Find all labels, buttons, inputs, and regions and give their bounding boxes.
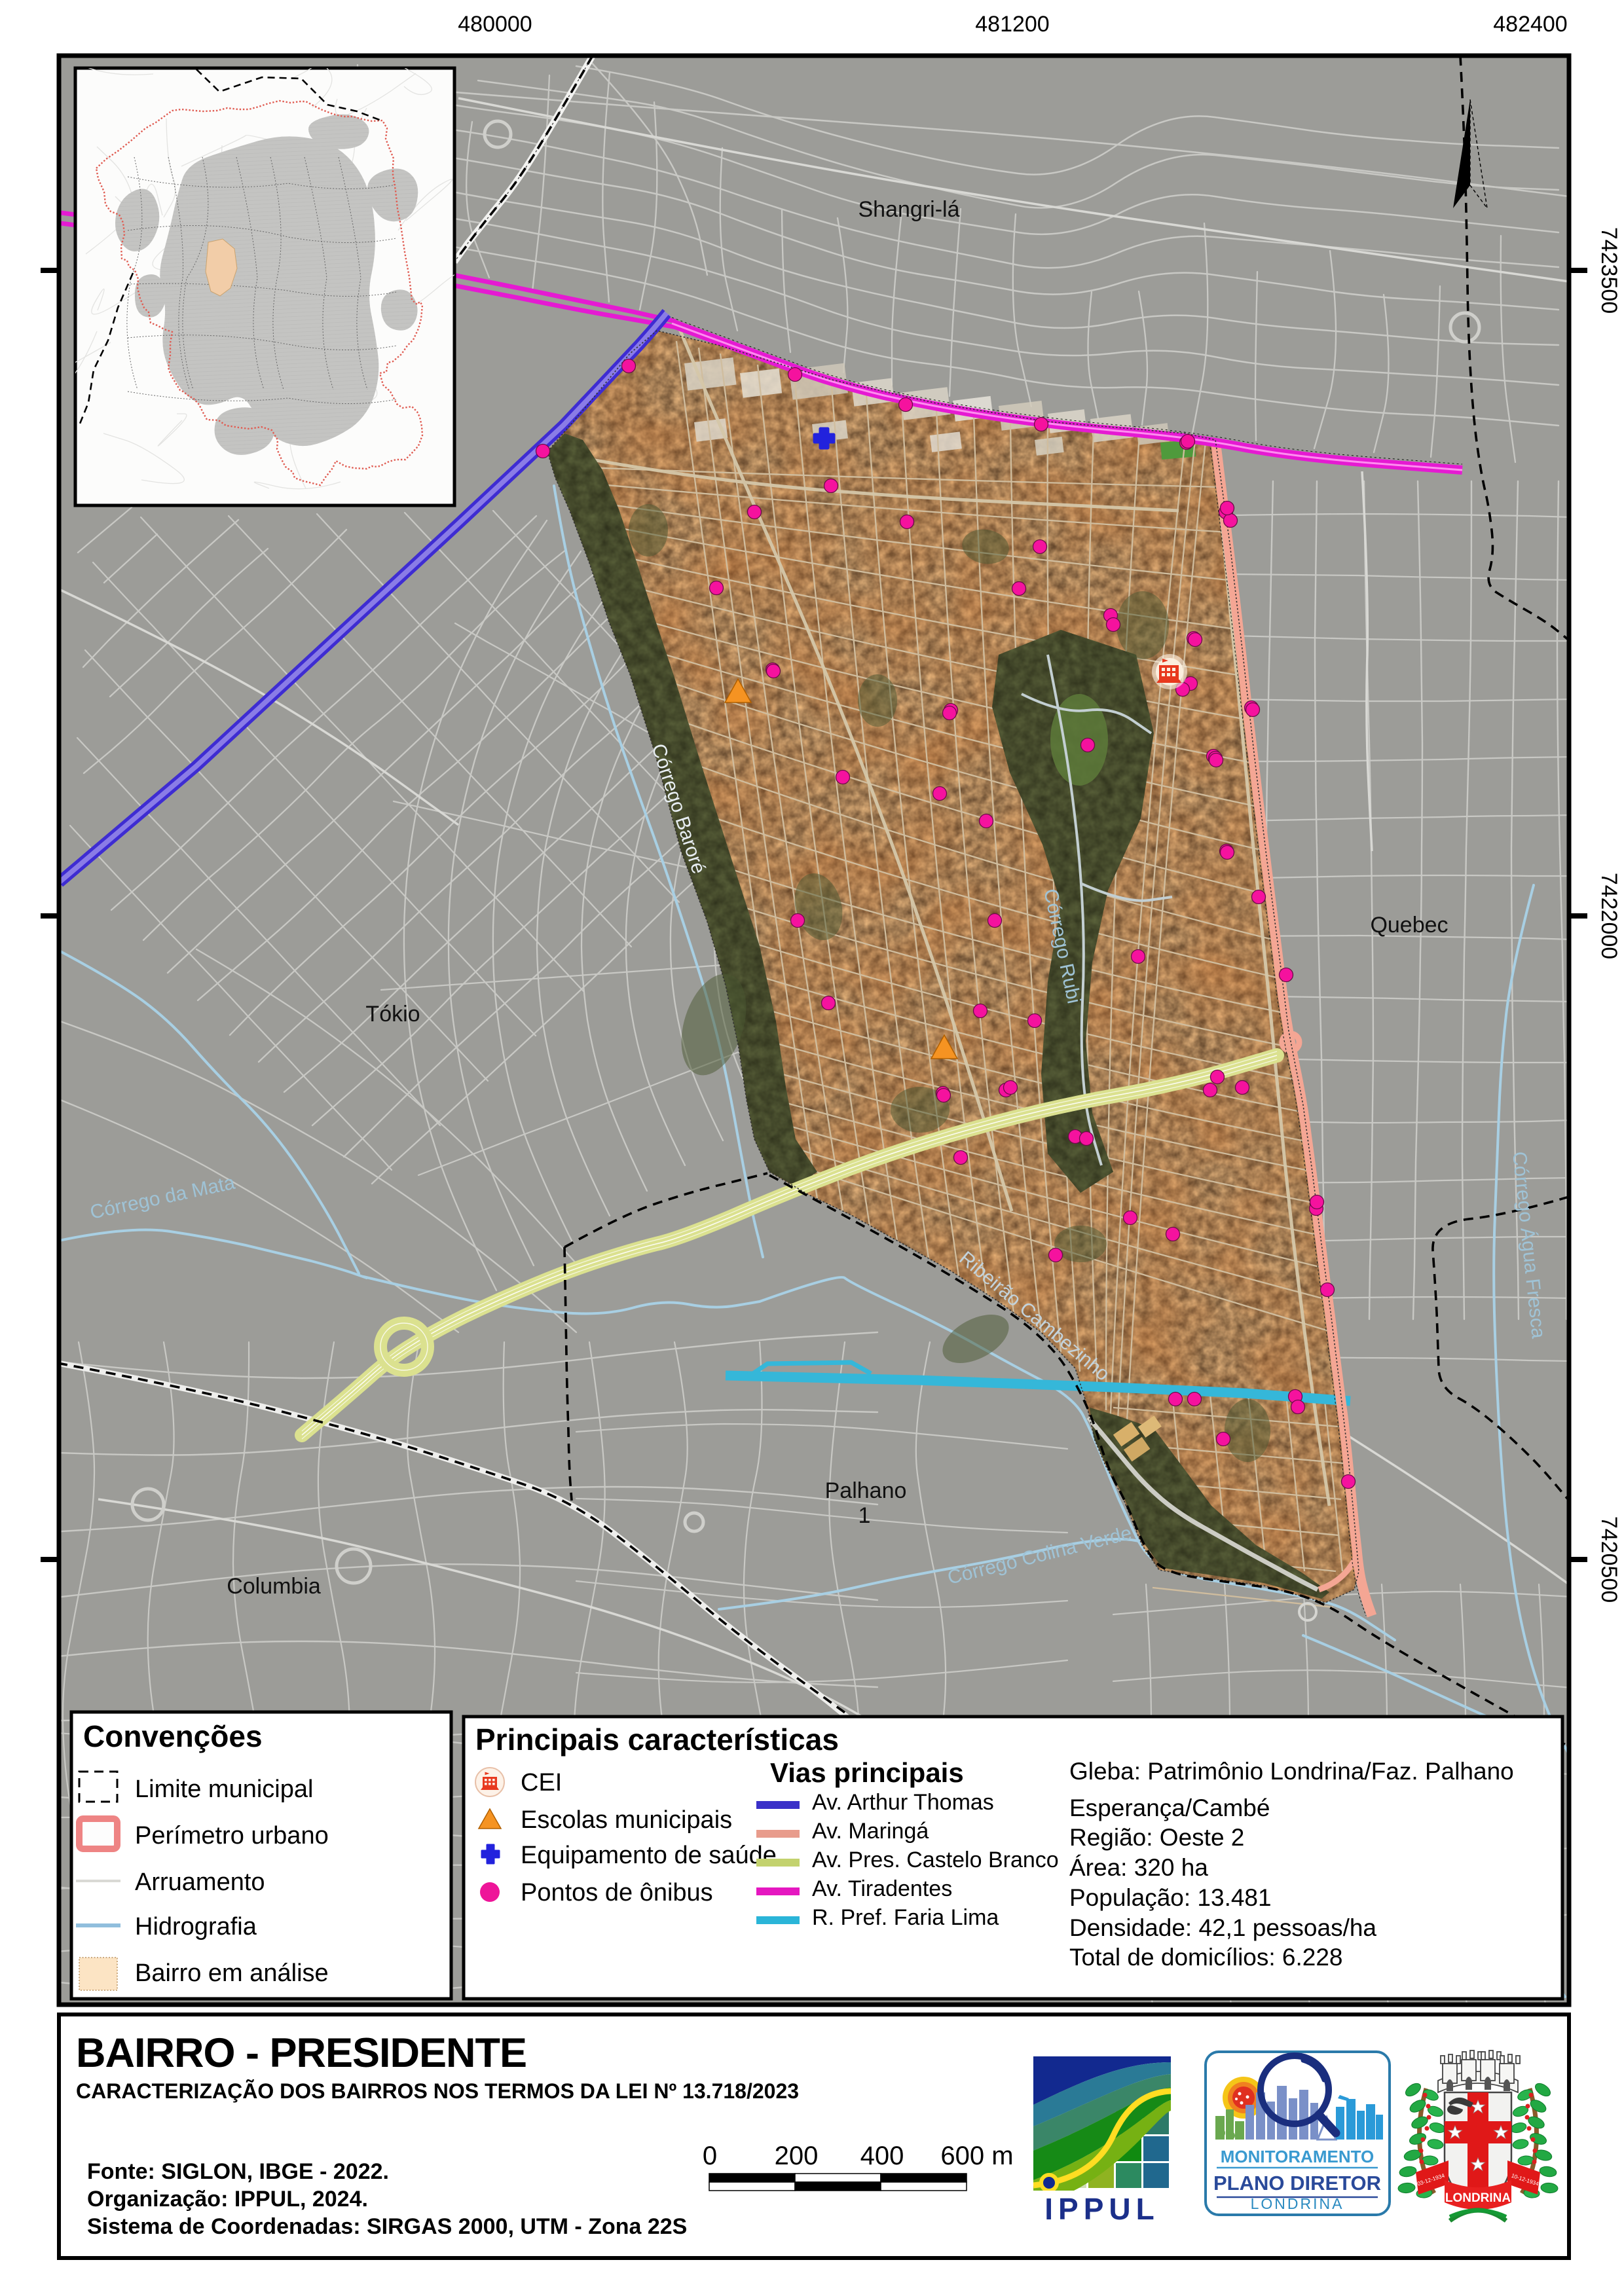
- svg-text:Pontos de ônibus: Pontos de ônibus: [521, 1879, 713, 1906]
- svg-text:Organização: IPPUL, 2024.: Organização: IPPUL, 2024.: [87, 2187, 368, 2212]
- svg-text:Esperança/Cambé: Esperança/Cambé: [1069, 1795, 1270, 1821]
- svg-text:480000: 480000: [458, 12, 532, 37]
- svg-text:600 m: 600 m: [940, 2141, 1013, 2170]
- svg-text:Escolas municipais: Escolas municipais: [521, 1806, 732, 1834]
- svg-text:LONDRINA: LONDRINA: [1445, 2191, 1511, 2205]
- svg-text:Hidrografia: Hidrografia: [135, 1913, 257, 1941]
- svg-text:População: 13.481: População: 13.481: [1069, 1884, 1272, 1911]
- svg-text:Columbia: Columbia: [227, 1574, 321, 1599]
- svg-text:Vias principais: Vias principais: [770, 1757, 964, 1788]
- svg-text:Tókio: Tókio: [365, 1002, 420, 1027]
- svg-text:Sistema de Coordenadas: SIRGAS: Sistema de Coordenadas: SIRGAS 2000, UTM…: [87, 2214, 687, 2239]
- svg-text:IPPUL: IPPUL: [1044, 2192, 1159, 2226]
- svg-text:0: 0: [703, 2141, 717, 2170]
- svg-text:Av. Tiradentes: Av. Tiradentes: [812, 1876, 952, 1901]
- svg-text:Palhano: Palhano: [825, 1478, 907, 1503]
- svg-text:1: 1: [858, 1503, 871, 1528]
- svg-text:Perímetro urbano: Perímetro urbano: [135, 1822, 329, 1850]
- svg-text:482400: 482400: [1493, 12, 1567, 37]
- svg-text:7423500: 7423500: [1596, 227, 1621, 314]
- svg-text:400: 400: [860, 2141, 904, 2170]
- svg-text:BAIRRO - PRESIDENTE: BAIRRO - PRESIDENTE: [76, 2030, 526, 2076]
- svg-text:MONITORAMENTO: MONITORAMENTO: [1221, 2147, 1374, 2166]
- svg-text:Área: 320 ha: Área: 320 ha: [1069, 1854, 1208, 1881]
- svg-text:Total de domicílios: 6.228: Total de domicílios: 6.228: [1069, 1944, 1343, 1971]
- svg-text:Equipamento de saúde: Equipamento de saúde: [521, 1842, 777, 1869]
- svg-text:7422000: 7422000: [1596, 873, 1621, 959]
- svg-text:Quebec: Quebec: [1370, 913, 1448, 938]
- svg-text:Av. Pres. Castelo Branco: Av. Pres. Castelo Branco: [812, 1848, 1059, 1872]
- svg-text:Região: Oeste 2: Região: Oeste 2: [1069, 1824, 1244, 1851]
- svg-text:7420500: 7420500: [1596, 1516, 1621, 1603]
- svg-text:Shangri-lá: Shangri-lá: [858, 197, 960, 222]
- svg-text:200: 200: [775, 2141, 819, 2170]
- svg-text:Limite municipal: Limite municipal: [135, 1776, 313, 1803]
- svg-text:Arruamento: Arruamento: [135, 1868, 265, 1896]
- svg-text:LONDRINA: LONDRINA: [1251, 2195, 1344, 2212]
- svg-text:CARACTERIZAÇÃO DOS BAIRROS NOS: CARACTERIZAÇÃO DOS BAIRROS NOS TERMOS DA…: [76, 2079, 799, 2103]
- svg-text:Convenções: Convenções: [83, 1719, 263, 1753]
- svg-text:481200: 481200: [975, 12, 1049, 37]
- svg-text:PLANO DIRETOR: PLANO DIRETOR: [1213, 2172, 1381, 2195]
- svg-text:Densidade: 42,1 pessoas/ha: Densidade: 42,1 pessoas/ha: [1069, 1914, 1376, 1941]
- svg-text:Av. Maringá: Av. Maringá: [812, 1819, 929, 1844]
- svg-text:Bairro em análise: Bairro em análise: [135, 1959, 329, 1987]
- svg-text:Av. Arthur Thomas: Av. Arthur Thomas: [812, 1790, 994, 1815]
- svg-text:Fonte: SIGLON, IBGE - 2022.: Fonte: SIGLON, IBGE - 2022.: [87, 2159, 389, 2184]
- svg-text:R. Pref. Faria Lima: R. Pref. Faria Lima: [812, 1905, 999, 1930]
- svg-text:Gleba: Patrimônio Londrina/Faz: Gleba: Patrimônio Londrina/Faz. Palhano: [1069, 1758, 1514, 1785]
- svg-text:CEI: CEI: [521, 1769, 562, 1796]
- svg-text:Principais características: Principais características: [475, 1722, 839, 1757]
